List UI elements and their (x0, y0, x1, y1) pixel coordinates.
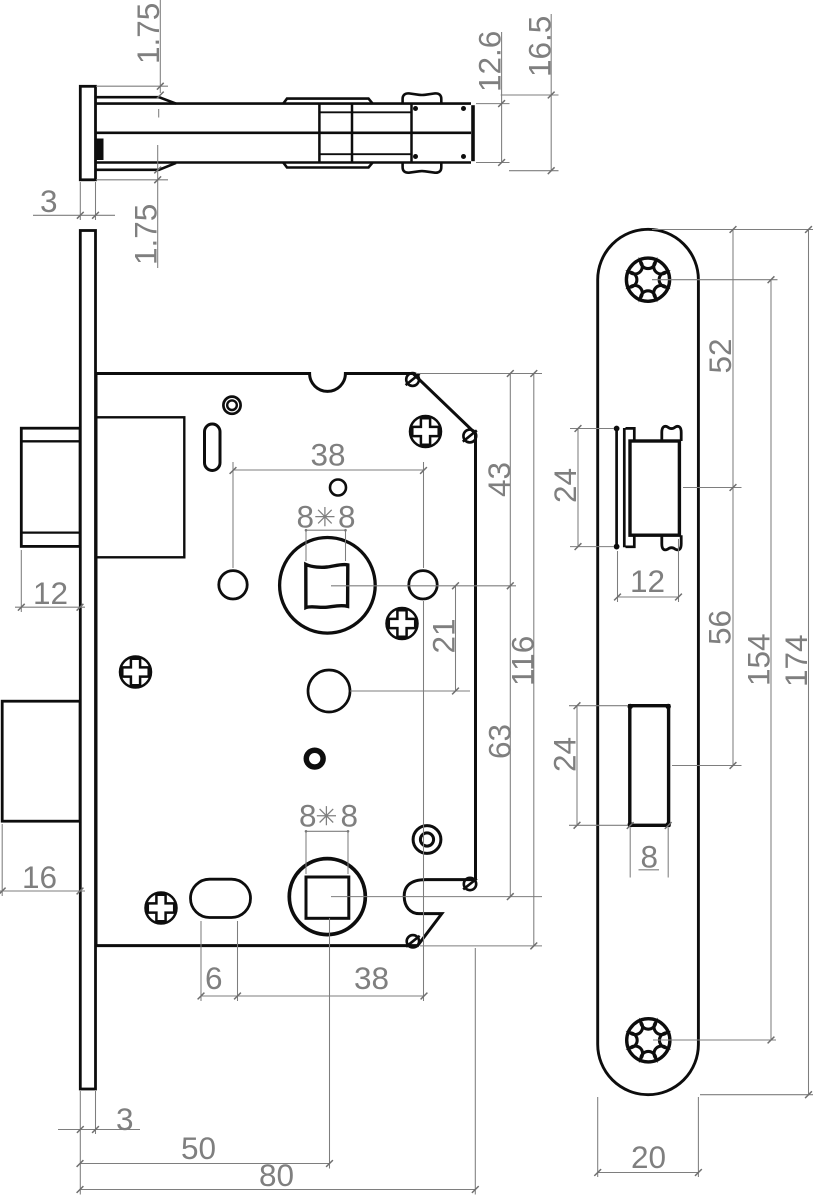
svg-text:80: 80 (259, 1157, 294, 1193)
svg-text:1.75: 1.75 (128, 204, 164, 265)
svg-text:56: 56 (702, 610, 738, 645)
svg-text:174: 174 (778, 634, 814, 687)
svg-text:52: 52 (702, 338, 738, 373)
svg-text:24: 24 (547, 468, 583, 503)
svg-text:24: 24 (547, 737, 583, 772)
svg-text:154: 154 (741, 633, 777, 686)
svg-text:43: 43 (481, 462, 517, 497)
svg-text:12: 12 (33, 575, 68, 611)
svg-text:3: 3 (116, 1101, 134, 1137)
svg-text:1.75: 1.75 (130, 3, 166, 64)
svg-text:16.5: 16.5 (522, 16, 558, 77)
svg-text:21: 21 (426, 618, 462, 653)
svg-text:50: 50 (181, 1130, 216, 1166)
svg-text:63: 63 (481, 724, 517, 759)
svg-text:8: 8 (297, 499, 315, 535)
svg-text:8: 8 (338, 499, 356, 535)
svg-text:8: 8 (299, 798, 317, 834)
svg-text:12.6: 12.6 (472, 31, 508, 92)
svg-text:3: 3 (40, 183, 58, 219)
svg-text:38: 38 (354, 960, 389, 996)
svg-text:6: 6 (205, 960, 223, 996)
svg-text:8: 8 (341, 798, 359, 834)
svg-text:20: 20 (631, 1139, 666, 1175)
svg-text:12: 12 (630, 563, 665, 599)
svg-text:8: 8 (641, 839, 659, 875)
svg-text:116: 116 (505, 636, 541, 686)
svg-text:38: 38 (311, 437, 346, 473)
svg-text:16: 16 (22, 859, 57, 895)
